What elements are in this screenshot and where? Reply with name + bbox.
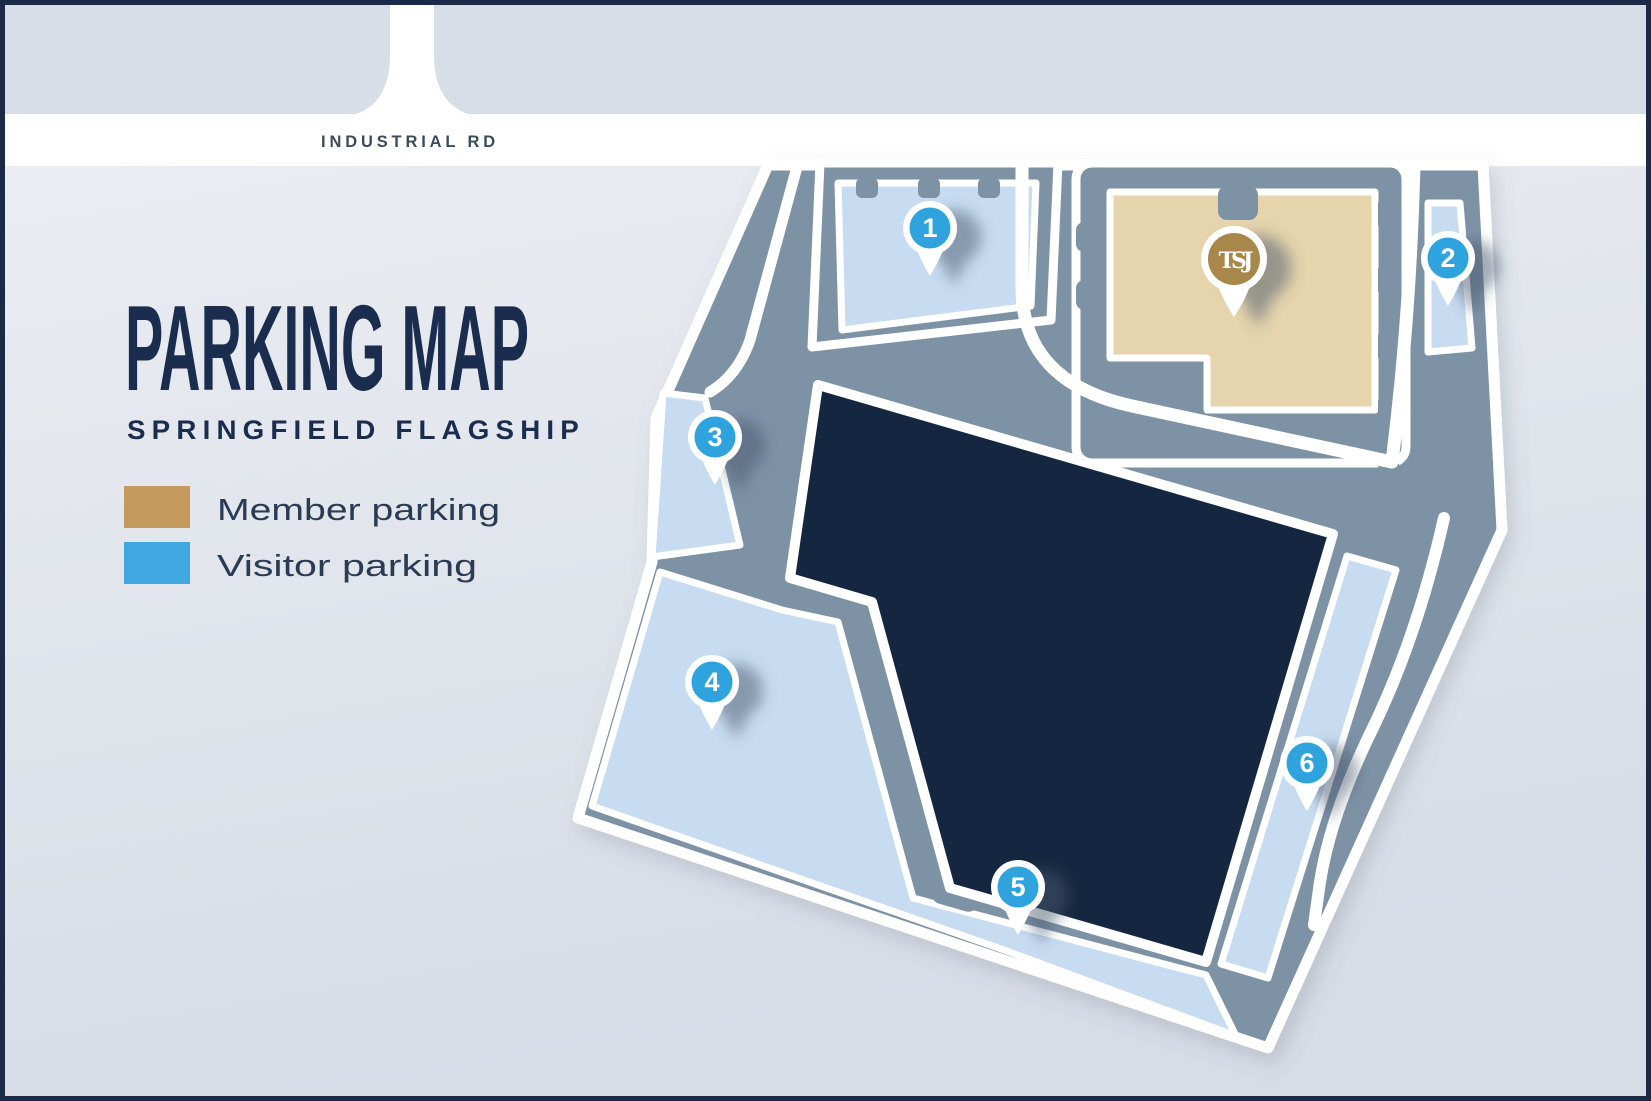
divider-tab — [1378, 262, 1400, 298]
pin-number: 3 — [707, 422, 722, 452]
visitor-parking-swatch — [124, 542, 190, 584]
member-parking-label: Member parking — [217, 492, 500, 527]
pin-number: 2 — [1440, 243, 1455, 273]
pin-number: 6 — [1299, 748, 1314, 778]
pin-number: 1 — [922, 213, 937, 243]
page-title: PARKING MAP — [125, 280, 529, 416]
member-lot-tab — [1076, 222, 1104, 252]
divider-tab — [1378, 196, 1400, 232]
parking-map-canvas: INDUSTRIAL RD — [0, 0, 1651, 1101]
lot-1-tab — [856, 178, 878, 198]
city-block-right — [434, 0, 1651, 114]
lot-1-tab — [978, 178, 1000, 198]
pin-number: 5 — [1010, 872, 1025, 902]
member-lot-notch — [1218, 186, 1258, 220]
page-subtitle: SPRINGFIELD FLAGSHIP — [127, 415, 585, 445]
lot-1-tab — [918, 178, 940, 198]
city-block-left — [0, 0, 390, 114]
member-parking-swatch — [124, 486, 190, 528]
member-lot-tab — [1076, 280, 1104, 310]
visitor-parking-label: Visitor parking — [217, 548, 477, 583]
pin-number: 4 — [704, 667, 719, 697]
monogram-logo: TSJ — [1219, 248, 1253, 274]
road-label: INDUSTRIAL RD — [321, 132, 499, 151]
parking-map-page: INDUSTRIAL RD — [0, 0, 1651, 1101]
